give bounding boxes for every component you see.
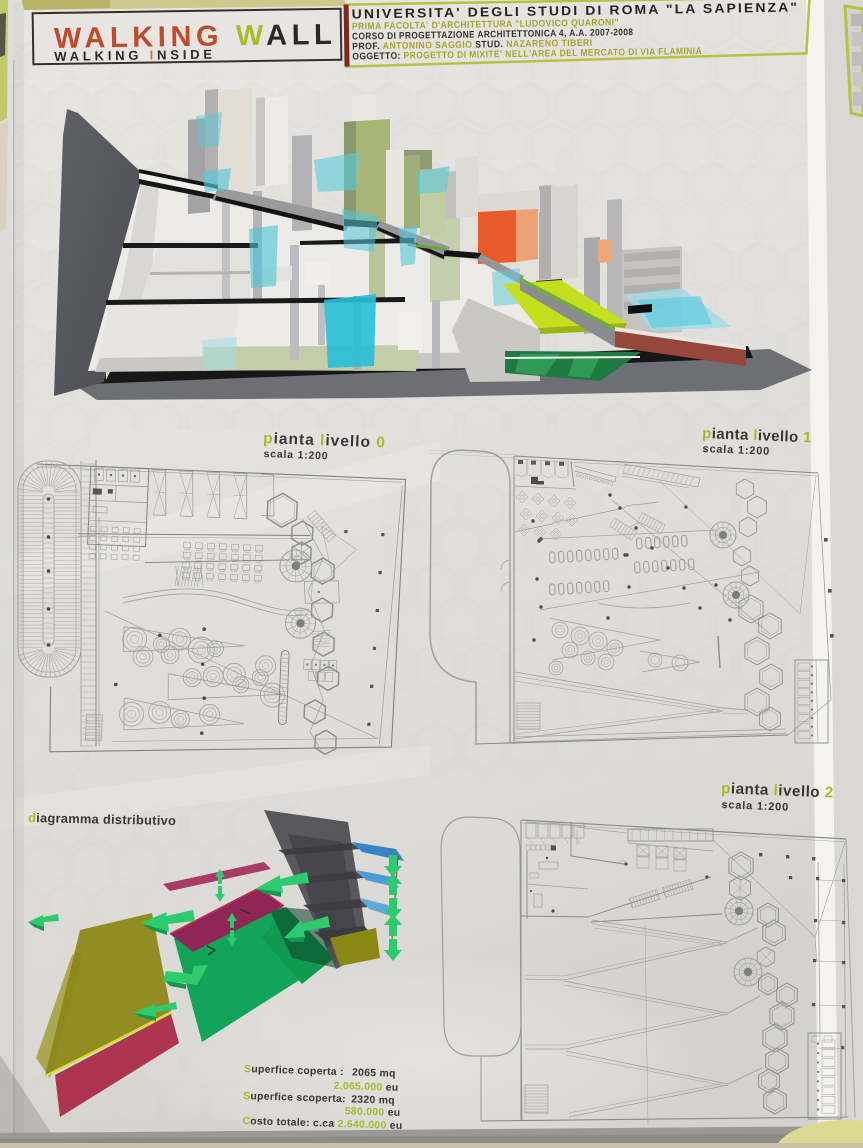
svg-text:WALKING INSIDE: WALKING INSIDE (54, 47, 216, 64)
svg-text:diagramma distributivo: diagramma distributivo (28, 810, 176, 828)
svg-text:2.065.000 eu: 2.065.000 eu (333, 1081, 398, 1094)
svg-text:scala 1:200: scala 1:200 (263, 448, 328, 462)
svg-text:580.000 eu: 580.000 eu (345, 1106, 401, 1119)
